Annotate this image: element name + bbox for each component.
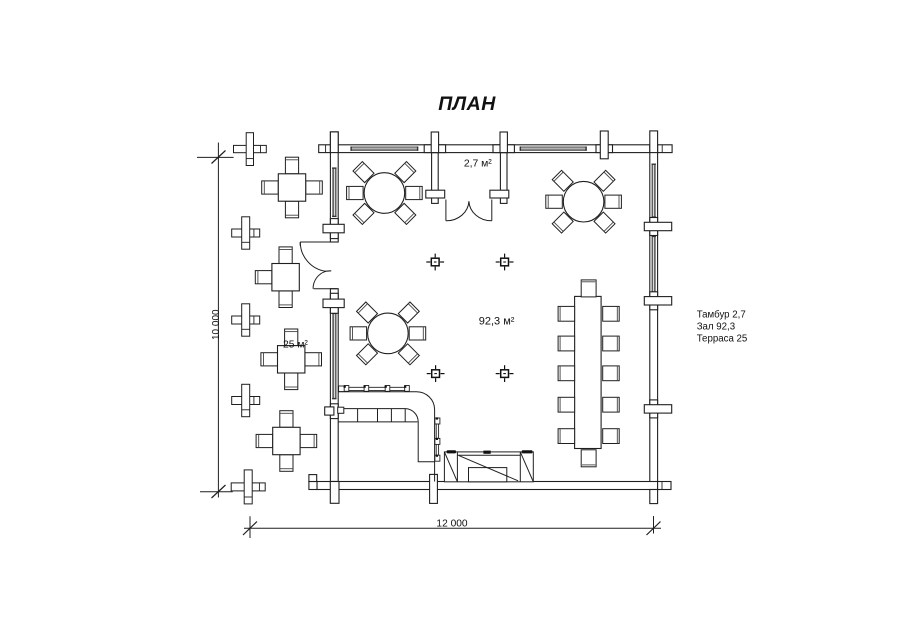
- svg-text:Зал 92,3: Зал 92,3: [697, 321, 735, 332]
- svg-text:25 м²: 25 м²: [283, 339, 308, 350]
- svg-text:Терраса 25: Терраса 25: [697, 334, 748, 345]
- svg-text:Тамбур 2,7: Тамбур 2,7: [697, 310, 746, 321]
- svg-text:2,7 м²: 2,7 м²: [464, 159, 492, 170]
- svg-text:12 000: 12 000: [436, 519, 467, 530]
- svg-text:92,3 м²: 92,3 м²: [479, 316, 515, 328]
- svg-text:ПЛАН: ПЛАН: [438, 93, 496, 115]
- svg-text:10 000: 10 000: [211, 309, 222, 340]
